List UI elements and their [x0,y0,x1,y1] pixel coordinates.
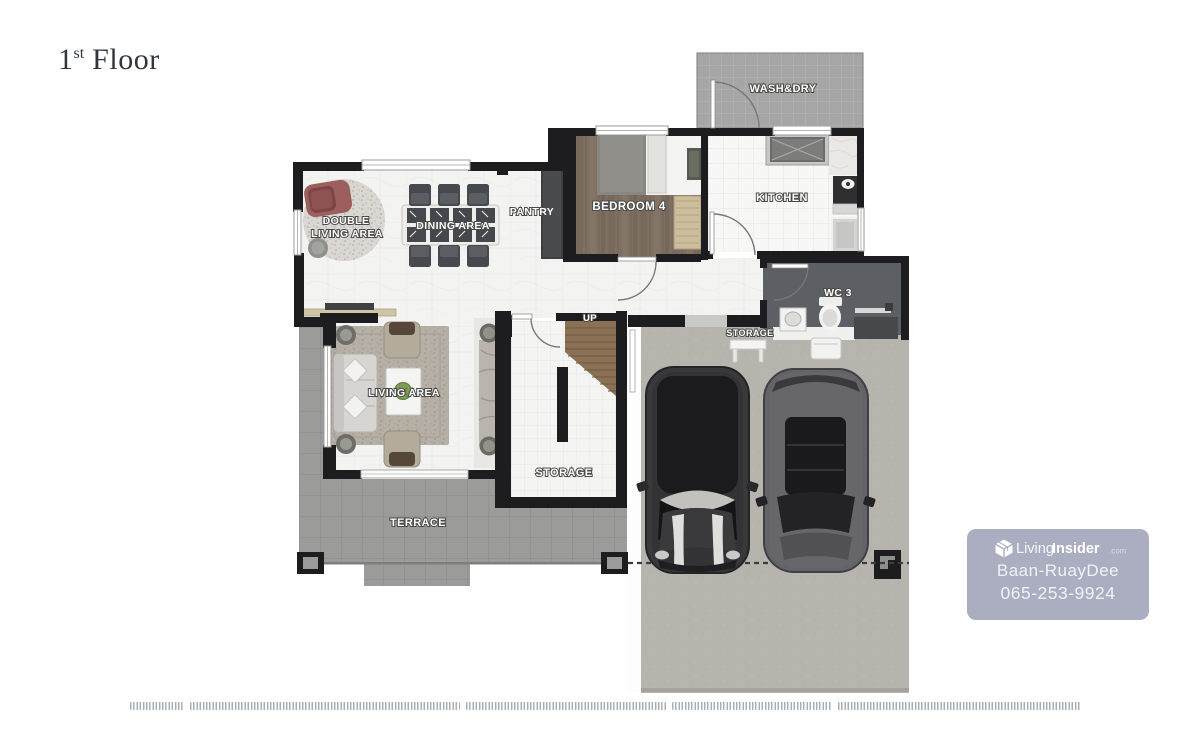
svg-text:WC 3: WC 3 [824,287,852,299]
svg-text:UP: UP [583,313,597,324]
svg-text:DOUBLE: DOUBLE [323,215,370,227]
svg-text:LIVING AREA: LIVING AREA [311,228,383,240]
svg-text:DINING AREA: DINING AREA [416,220,489,232]
svg-text:STORAGE: STORAGE [536,467,593,479]
svg-text:KITCHEN: KITCHEN [756,192,808,204]
svg-text:WASH&DRY: WASH&DRY [750,83,817,95]
svg-text:Living: Living [1016,541,1054,557]
svg-text:Insider: Insider [1052,541,1100,557]
svg-text:BEDROOM 4: BEDROOM 4 [592,201,665,213]
svg-text:TERRACE: TERRACE [390,517,446,529]
svg-text:PANTRY: PANTRY [510,206,554,218]
svg-text:STORAGE: STORAGE [726,328,773,338]
svg-text:LIVING AREA: LIVING AREA [368,387,440,399]
svg-text:.com: .com [1109,547,1127,556]
